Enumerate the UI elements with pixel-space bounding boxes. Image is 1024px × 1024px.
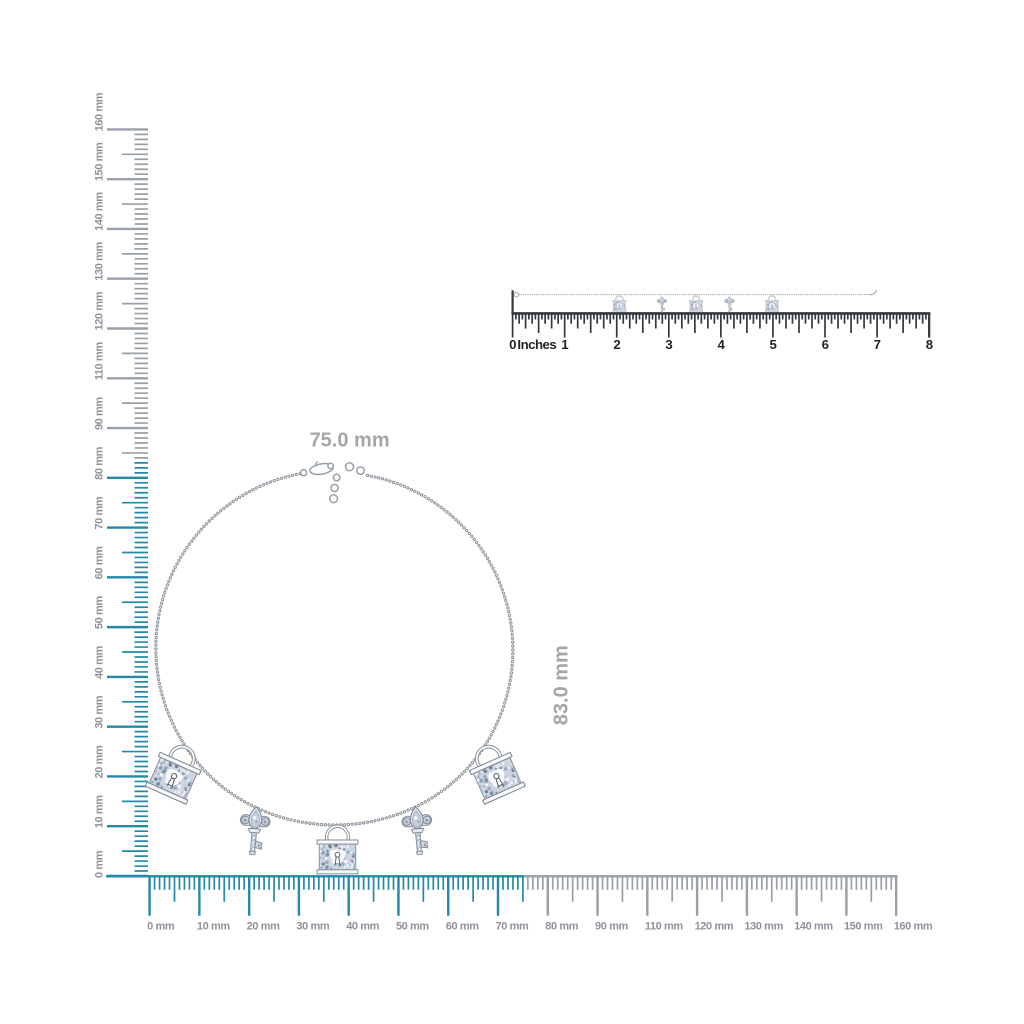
svg-text:20 mm: 20 mm xyxy=(247,921,280,933)
svg-text:4: 4 xyxy=(717,337,725,352)
svg-text:3: 3 xyxy=(665,337,672,352)
svg-text:80 mm: 80 mm xyxy=(545,921,578,933)
svg-text:1: 1 xyxy=(561,337,568,352)
svg-text:90 mm: 90 mm xyxy=(595,921,628,933)
svg-text:130 mm: 130 mm xyxy=(744,921,783,933)
svg-text:110 mm: 110 mm xyxy=(645,921,684,933)
svg-text:80 mm: 80 mm xyxy=(94,446,106,479)
svg-text:75.0 mm: 75.0 mm xyxy=(310,430,390,452)
svg-text:150 mm: 150 mm xyxy=(844,921,883,933)
svg-text:0 mm: 0 mm xyxy=(147,921,175,933)
svg-text:7: 7 xyxy=(874,337,881,352)
svg-text:70 mm: 70 mm xyxy=(94,496,106,529)
svg-text:0 mm: 0 mm xyxy=(94,850,106,878)
svg-text:83.0 mm: 83.0 mm xyxy=(551,645,573,725)
svg-text:Inches: Inches xyxy=(517,337,556,352)
svg-text:160 mm: 160 mm xyxy=(894,921,933,933)
svg-text:50 mm: 50 mm xyxy=(94,596,106,629)
svg-text:120 mm: 120 mm xyxy=(94,291,106,330)
svg-text:40 mm: 40 mm xyxy=(346,921,379,933)
svg-text:8: 8 xyxy=(926,337,933,352)
svg-text:130 mm: 130 mm xyxy=(94,242,106,281)
svg-text:10 mm: 10 mm xyxy=(197,921,230,933)
svg-text:2: 2 xyxy=(613,337,620,352)
svg-text:6: 6 xyxy=(822,337,829,352)
svg-text:60 mm: 60 mm xyxy=(446,921,479,933)
svg-text:140 mm: 140 mm xyxy=(794,921,833,933)
svg-text:40 mm: 40 mm xyxy=(94,645,106,678)
svg-text:150 mm: 150 mm xyxy=(94,142,106,181)
svg-text:160 mm: 160 mm xyxy=(94,92,106,131)
svg-text:90 mm: 90 mm xyxy=(94,397,106,430)
svg-text:30 mm: 30 mm xyxy=(296,921,329,933)
svg-text:70 mm: 70 mm xyxy=(496,921,529,933)
svg-text:110 mm: 110 mm xyxy=(94,342,106,381)
svg-text:60 mm: 60 mm xyxy=(94,546,106,579)
svg-text:140 mm: 140 mm xyxy=(94,192,106,231)
svg-text:5: 5 xyxy=(770,337,777,352)
svg-text:10 mm: 10 mm xyxy=(94,795,106,828)
svg-text:20 mm: 20 mm xyxy=(94,745,106,778)
svg-text:50 mm: 50 mm xyxy=(396,921,429,933)
svg-text:0: 0 xyxy=(509,337,516,352)
svg-text:120 mm: 120 mm xyxy=(695,921,734,933)
svg-text:30 mm: 30 mm xyxy=(94,695,106,728)
